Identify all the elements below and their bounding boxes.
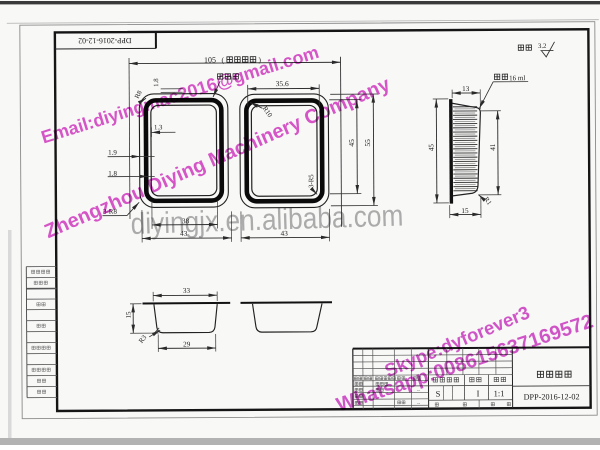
svg-text:S: S <box>436 389 441 399</box>
svg-text:3.2: 3.2 <box>538 43 547 50</box>
svg-text:DPP-2016-12-02: DPP-2016-12-02 <box>524 392 580 401</box>
svg-text:29: 29 <box>183 340 191 348</box>
svg-text:105: 105 <box>204 56 216 65</box>
svg-text:35.6: 35.6 <box>276 79 289 88</box>
svg-text:45: 45 <box>347 139 356 147</box>
svg-text:41: 41 <box>489 143 497 151</box>
svg-text:13: 13 <box>462 85 470 93</box>
svg-text:1.8: 1.8 <box>153 78 160 87</box>
svg-text:3-R5: 3-R5 <box>308 174 315 188</box>
svg-text:1:1: 1:1 <box>494 388 505 398</box>
svg-text:16 ml: 16 ml <box>509 74 525 82</box>
svg-text:--: -- <box>417 400 421 405</box>
svg-text:38: 38 <box>182 217 190 225</box>
svg-text:15: 15 <box>461 207 469 215</box>
svg-text:1.3: 1.3 <box>154 124 163 131</box>
svg-text:I: I <box>477 388 480 398</box>
svg-text:55: 55 <box>363 139 372 147</box>
svg-text:DPP-2016-12-02: DPP-2016-12-02 <box>78 36 131 45</box>
svg-text:1.9: 1.9 <box>108 149 117 157</box>
svg-text:33: 33 <box>183 287 191 295</box>
svg-text:43: 43 <box>180 230 188 238</box>
svg-text:43: 43 <box>281 230 289 238</box>
svg-text:15: 15 <box>125 311 133 319</box>
svg-text:45: 45 <box>428 144 436 152</box>
